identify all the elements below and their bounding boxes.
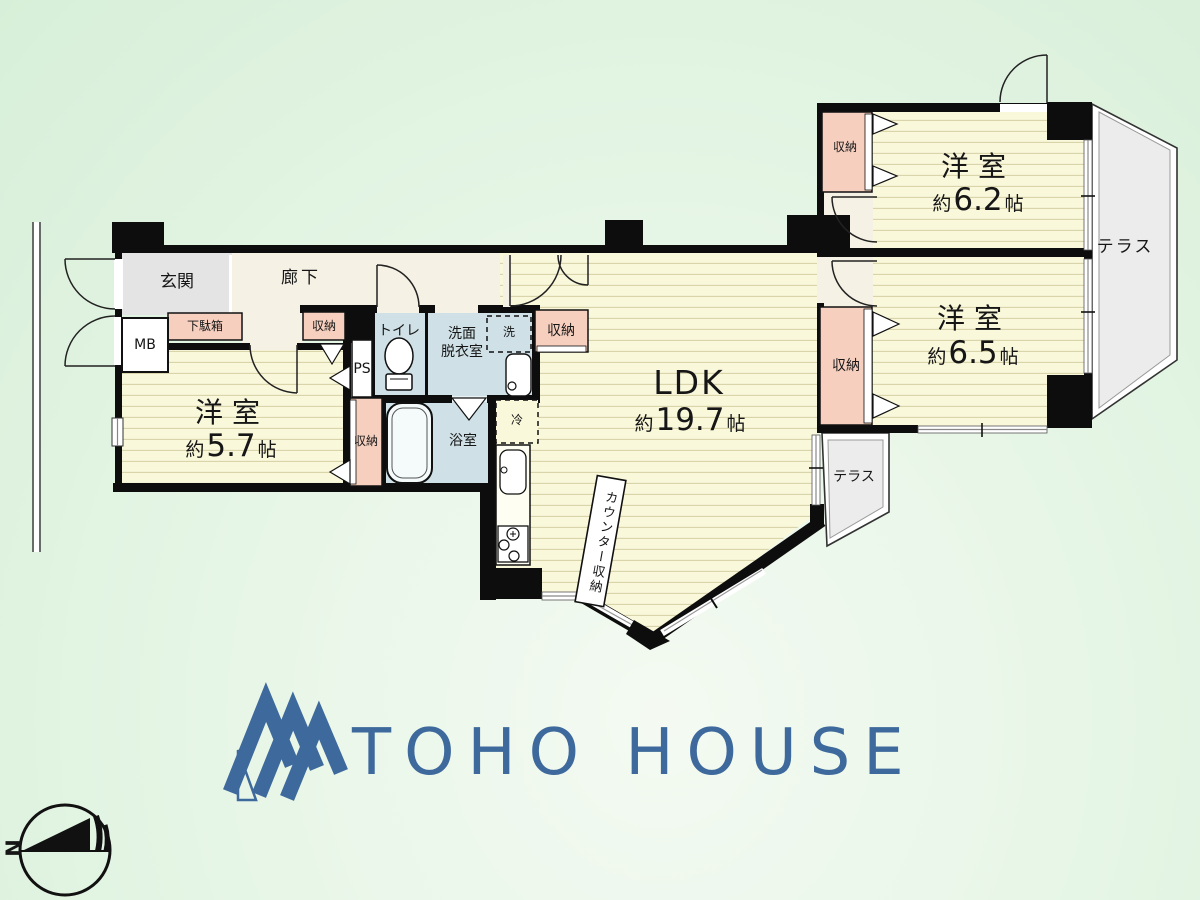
bathtub-icon xyxy=(387,403,432,483)
terrace-bottom-label: テラス xyxy=(833,469,875,485)
room-b-unit: 帖 xyxy=(1005,194,1024,216)
hall-storage-label: 収納 xyxy=(312,320,336,334)
shoe-cabinet-label: 下駄箱 xyxy=(187,320,223,334)
refrigerator-label: 冷 xyxy=(511,414,523,428)
stove-icon xyxy=(498,526,528,562)
toilet-icon xyxy=(385,338,413,390)
ldk-area: 19.7 xyxy=(655,403,724,439)
ldk-size-label: 約19.7帖 xyxy=(634,403,745,439)
washroom-label-1: 洗面 xyxy=(448,326,476,342)
toho-house-logo-icon xyxy=(230,702,341,800)
north-label: N xyxy=(2,839,26,857)
room-a-name-label: 洋室 xyxy=(195,397,269,429)
ldk-storage-label: 収納 xyxy=(547,323,575,339)
terrace-bottom xyxy=(822,433,889,546)
hallway-label: 廊下 xyxy=(281,269,321,289)
room-b-area: 6.2 xyxy=(953,183,1002,219)
room-b-name-label: 洋室 xyxy=(941,151,1015,183)
vestibule-c xyxy=(824,257,873,309)
site-boundary-line xyxy=(33,222,40,552)
room-c-name-label: 洋室 xyxy=(937,303,1011,335)
room-a-door-opening xyxy=(250,344,297,350)
terrace-right-label: テラス xyxy=(1097,238,1154,258)
room-b-size-label: 約6.2帖 xyxy=(932,183,1023,219)
room-a-size-label: 約5.7帖 xyxy=(185,429,276,465)
room-c-storage-label: 収納 xyxy=(832,358,860,374)
washroom-door-opening xyxy=(435,306,478,313)
ldk-unit: 帖 xyxy=(727,414,746,436)
room-a-unit: 帖 xyxy=(258,440,277,462)
room-b-storage-label: 収納 xyxy=(833,141,857,155)
kitchen-unit xyxy=(496,445,530,565)
washroom-sink-icon xyxy=(506,354,531,396)
washing-machine-label: 洗 xyxy=(503,326,515,340)
meter-box-label: MB xyxy=(134,337,156,353)
room-b-north-opening xyxy=(1000,104,1047,112)
company-name-text: TOHO HOUSE xyxy=(352,716,917,790)
entrance-opening-top xyxy=(114,259,123,309)
toilet-door-opening xyxy=(377,306,419,313)
room-a-approx: 約 xyxy=(185,440,204,462)
window-west xyxy=(112,418,123,446)
kitchen-sink-icon xyxy=(500,450,526,494)
ldk-approx: 約 xyxy=(634,414,653,436)
terrace-right xyxy=(1092,104,1177,419)
entrance-label: 玄関 xyxy=(160,273,194,293)
room-c-approx: 約 xyxy=(927,347,946,369)
compass-icon xyxy=(20,805,110,895)
ldk-name-label: LDK xyxy=(653,364,724,402)
room-a-area: 5.7 xyxy=(206,429,255,465)
bathroom-label: 浴室 xyxy=(449,433,477,449)
toilet-label: トイレ xyxy=(378,323,420,339)
floorplan-page: 玄関 廊下 下駄箱 MB 収納 PS トイレ 洗面 脱衣室 洗 浴室 収納 冷 … xyxy=(0,0,1200,900)
room-b-approx: 約 xyxy=(932,194,951,216)
washroom-label-2: 脱衣室 xyxy=(441,344,483,360)
room-c-size-label: 約6.5帖 xyxy=(927,336,1018,372)
room-c-area: 6.5 xyxy=(948,336,997,372)
room-c-unit: 帖 xyxy=(1000,347,1019,369)
hallway-stub xyxy=(242,313,303,347)
pipe-space-label: PS xyxy=(353,361,370,377)
room-a-storage-label: 収納 xyxy=(354,435,378,449)
vestibule-opening xyxy=(817,257,824,303)
